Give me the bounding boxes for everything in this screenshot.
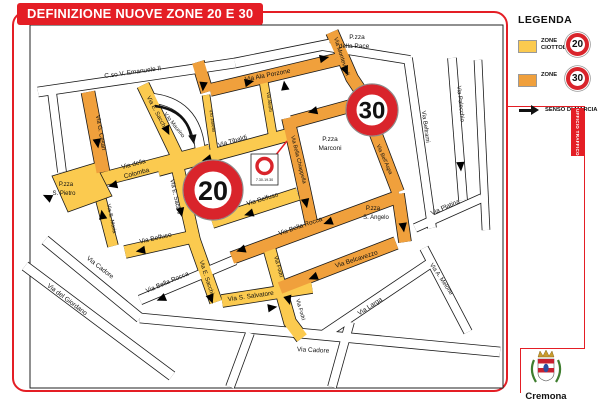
zone30-label: ZONE (541, 72, 567, 79)
zone30-sign: 30 (346, 84, 398, 136)
zone20-color-swatch (518, 40, 537, 53)
poster-page: C.so V. Emanuele II P.zza della Pace Via… (0, 0, 600, 400)
svg-text:30: 30 (359, 98, 386, 125)
street-label: P.zza (59, 182, 74, 188)
side-tab: UFFICIO TRAFFICO (571, 108, 584, 156)
side-tab-label: UFFICIO TRAFFICO (575, 109, 580, 156)
no-entry-icon (257, 159, 272, 174)
city-name: Cremona (523, 391, 569, 400)
street-label: S. Pietro (52, 191, 76, 197)
street-label: della Pace (339, 43, 370, 50)
city-logo: Cremona (523, 348, 569, 400)
legend-item-senso: SENSO DI MARCIA (514, 104, 598, 118)
legend-heading: LEGENDA (518, 14, 598, 26)
street-label: P.zza (366, 206, 381, 212)
speed-30-sign-icon: 30 (566, 67, 589, 90)
cremona-crest-icon (523, 348, 569, 392)
speed-20-sign-icon: 20 (566, 33, 589, 56)
street-label: P.zza (322, 136, 338, 143)
legend: LEGENDA ZONE CIOTTOLATE 20 ZONE 30 SENSO… (514, 12, 598, 118)
zone20-sign: 20 (183, 160, 243, 220)
zone30-color-swatch (518, 74, 537, 87)
page-title: DEFINIZIONE NUOVE ZONE 20 E 30 (17, 3, 263, 25)
mini-sign-time: 7.30-19.30 (256, 178, 273, 182)
legend-item-zone20: ZONE CIOTTOLATE 20 (514, 36, 598, 66)
street-label: P.zza (349, 34, 365, 41)
street-label: Marconi (318, 145, 341, 152)
street-label: S. Angelo (363, 215, 389, 221)
zone20-label-line2: CIOTTOLATE (541, 45, 567, 52)
svg-text:20: 20 (198, 176, 228, 206)
map-canvas: C.so V. Emanuele II P.zza della Pace Via… (0, 0, 600, 400)
legend-item-zone30: ZONE 30 (514, 70, 598, 100)
